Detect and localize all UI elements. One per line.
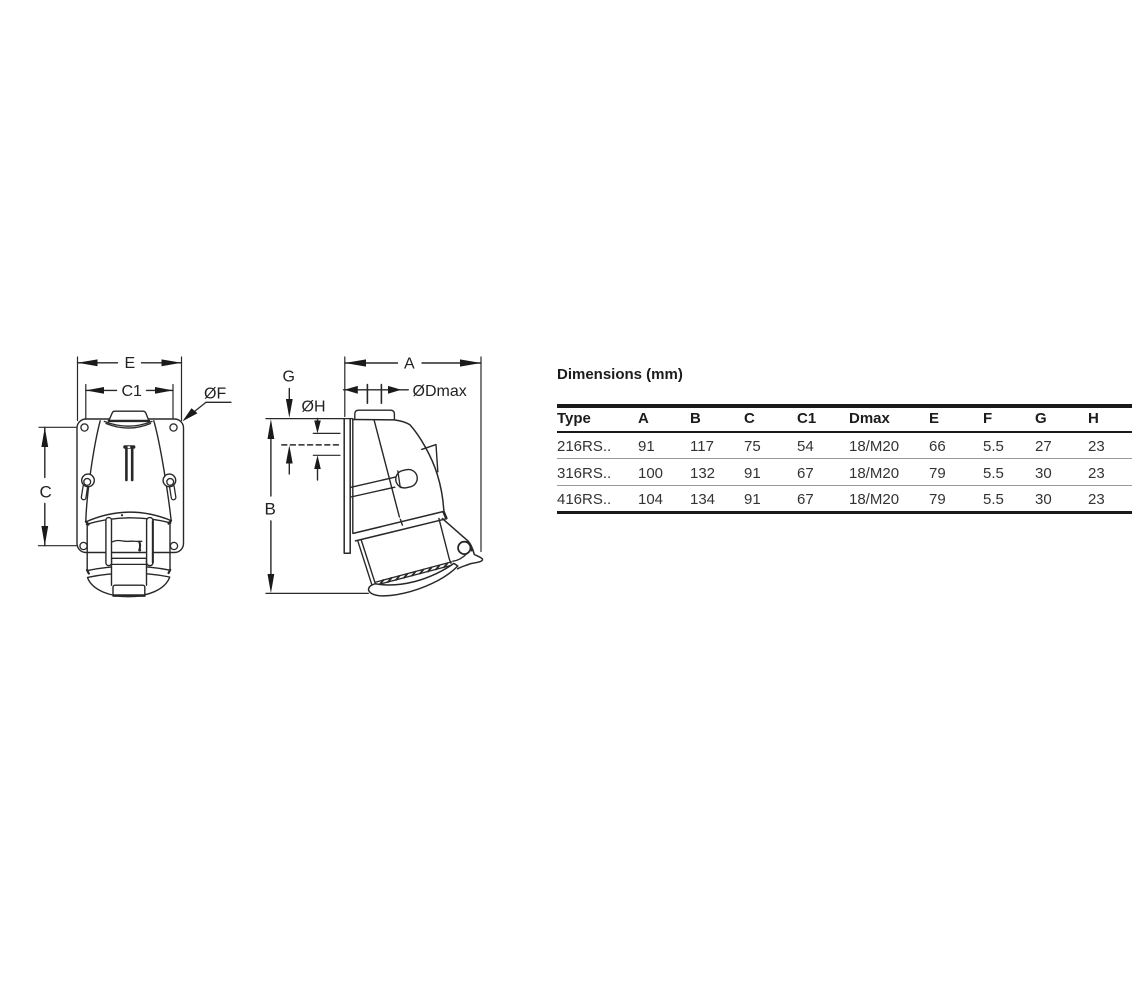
svg-text:E: E <box>125 355 136 372</box>
svg-text:ØH: ØH <box>302 399 326 416</box>
svg-text:A: A <box>404 356 415 373</box>
svg-text:ØF: ØF <box>204 386 226 403</box>
svg-text:B: B <box>265 500 276 519</box>
svg-text:C: C <box>40 483 52 502</box>
svg-text:C1: C1 <box>122 383 143 400</box>
svg-text:ØDmax: ØDmax <box>413 383 467 400</box>
svg-text:G: G <box>283 369 295 386</box>
